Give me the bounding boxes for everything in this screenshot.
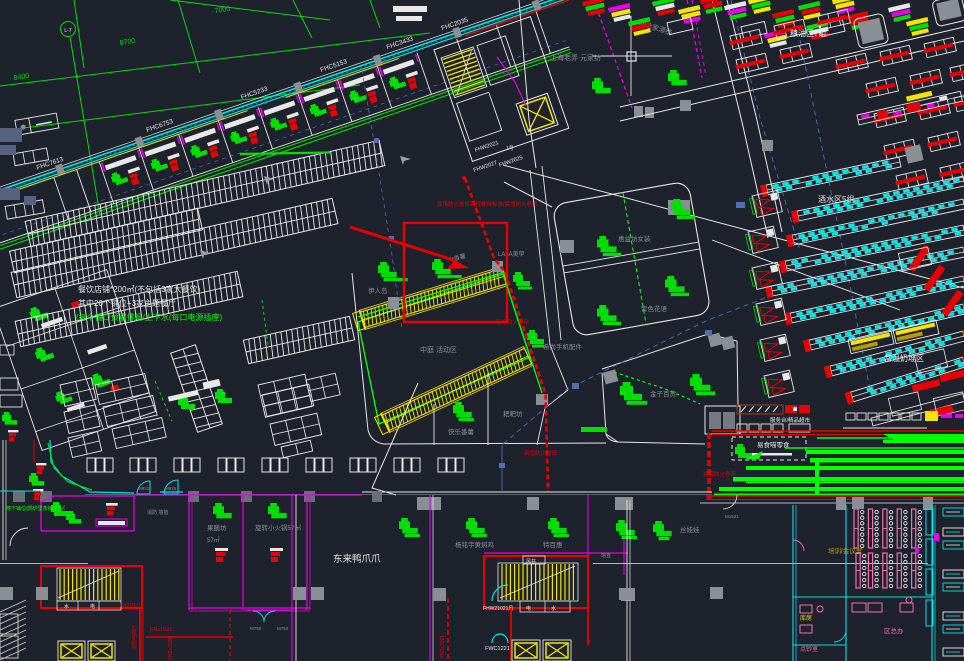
svg-text:馆查: 馆查 — [601, 552, 611, 559]
svg-text:FN21021: FN21021 — [120, 603, 141, 609]
svg-text:消防 墙埴: 消防 墙埴 — [147, 509, 168, 516]
svg-text:FWC1221: FWC1221 — [485, 646, 510, 652]
svg-text:快乐番薯: 快乐番薯 — [448, 427, 475, 436]
svg-text:M921: M921 — [138, 486, 150, 491]
svg-text:上海老弄 元家纺: 上海老弄 元家纺 — [550, 53, 601, 62]
svg-text:杨铭宇黄焖鸡: 杨铭宇黄焖鸡 — [455, 540, 495, 549]
svg-text:伊人岛: 伊人岛 — [368, 286, 388, 295]
svg-text:紫色花语: 紫色花语 — [641, 304, 668, 313]
svg-text:57㎡: 57㎡ — [207, 536, 220, 544]
svg-text:FHW21021风: FHW21021风 — [483, 606, 513, 612]
svg-text:特百惠: 特百惠 — [543, 540, 563, 549]
svg-text:电: 电 — [90, 603, 95, 610]
svg-text:东来鸭爪爪: 东来鸭爪爪 — [333, 553, 381, 565]
svg-text:电: 电 — [526, 605, 531, 612]
svg-text:FN2x2021: FN2x2021 — [440, 635, 446, 658]
svg-text:1号: 1号 — [506, 146, 514, 152]
svg-text:培训/会议室: 培训/会议室 — [828, 546, 863, 555]
svg-text:旋转小火锅57㎡: 旋转小火锅57㎡ — [255, 523, 302, 532]
svg-text:现场防火卷帘需按样林标准/需增防火卷帘: 现场防火卷帘需按样林标准/需增防火卷帘 — [437, 200, 538, 208]
svg-text:水: 水 — [551, 605, 556, 612]
svg-text:库房: 库房 — [800, 614, 812, 622]
svg-text:惠益坊女装: 惠益坊女装 — [618, 234, 651, 243]
svg-text:常温奶堆区: 常温奶堆区 — [884, 353, 924, 363]
svg-text:FNx1521: FNx1521 — [150, 627, 172, 633]
svg-text:新增防火卷帘: 新增防火卷帘 — [524, 449, 558, 457]
svg-text:M1521: M1521 — [725, 514, 739, 519]
svg-text:点钞室: 点钞室 — [800, 645, 818, 653]
svg-text:耙耙坊: 耙耙坊 — [503, 409, 523, 418]
svg-text:希尚手机配件: 希尚手机配件 — [543, 342, 583, 351]
svg-text:水: 水 — [64, 603, 69, 610]
svg-text:M750: M750 — [277, 626, 289, 631]
svg-text:现需防火卷帘: 现需防火卷帘 — [703, 470, 737, 478]
svg-text:L-7: L-7 — [64, 28, 71, 34]
svg-text:M925: M925 — [165, 486, 177, 491]
svg-text:餐饮店铺*200㎡(不包括3家大餐饮): 餐饮店铺*200㎡(不包括3家大餐饮) — [78, 284, 201, 294]
svg-text:地下铺位(焗炉里茶铺)22㎡: 地下铺位(焗炉里茶铺)22㎡ — [6, 505, 65, 512]
svg-text:LALA美甲: LALA美甲 — [498, 250, 525, 258]
svg-text:M750: M750 — [250, 626, 262, 631]
svg-text:其中20个铺位+3家主题餐厅: 其中20个铺位+3家主题餐厅 — [78, 298, 176, 308]
svg-text:果膳坊: 果膳坊 — [207, 523, 227, 532]
svg-text:区总办: 区总办 — [884, 626, 904, 635]
svg-text:中庭 活动区: 中庭 活动区 — [420, 345, 457, 354]
svg-text:粮油区7组: 粮油区7组 — [790, 28, 826, 38]
svg-text:(每个铺口预留排烟/上下水(每口电源插座): (每个铺口预留排烟/上下水(每口电源插座) — [76, 312, 223, 322]
svg-text:FN2x2021: FN2x2021 — [168, 637, 174, 660]
svg-text:酒水区5组: 酒水区5组 — [818, 194, 854, 204]
svg-text:风井: 风井 — [526, 558, 536, 565]
svg-text:新增防火卷帘: 新增防火卷帘 — [496, 318, 530, 326]
svg-text:丝娃娃: 丝娃娃 — [680, 525, 700, 534]
svg-text:服务台/精品超市: 服务台/精品超市 — [770, 416, 811, 424]
svg-text:消防电梯厅: 消防电梯厅 — [131, 625, 138, 650]
svg-text:金子百货: 金子百货 — [650, 389, 677, 398]
